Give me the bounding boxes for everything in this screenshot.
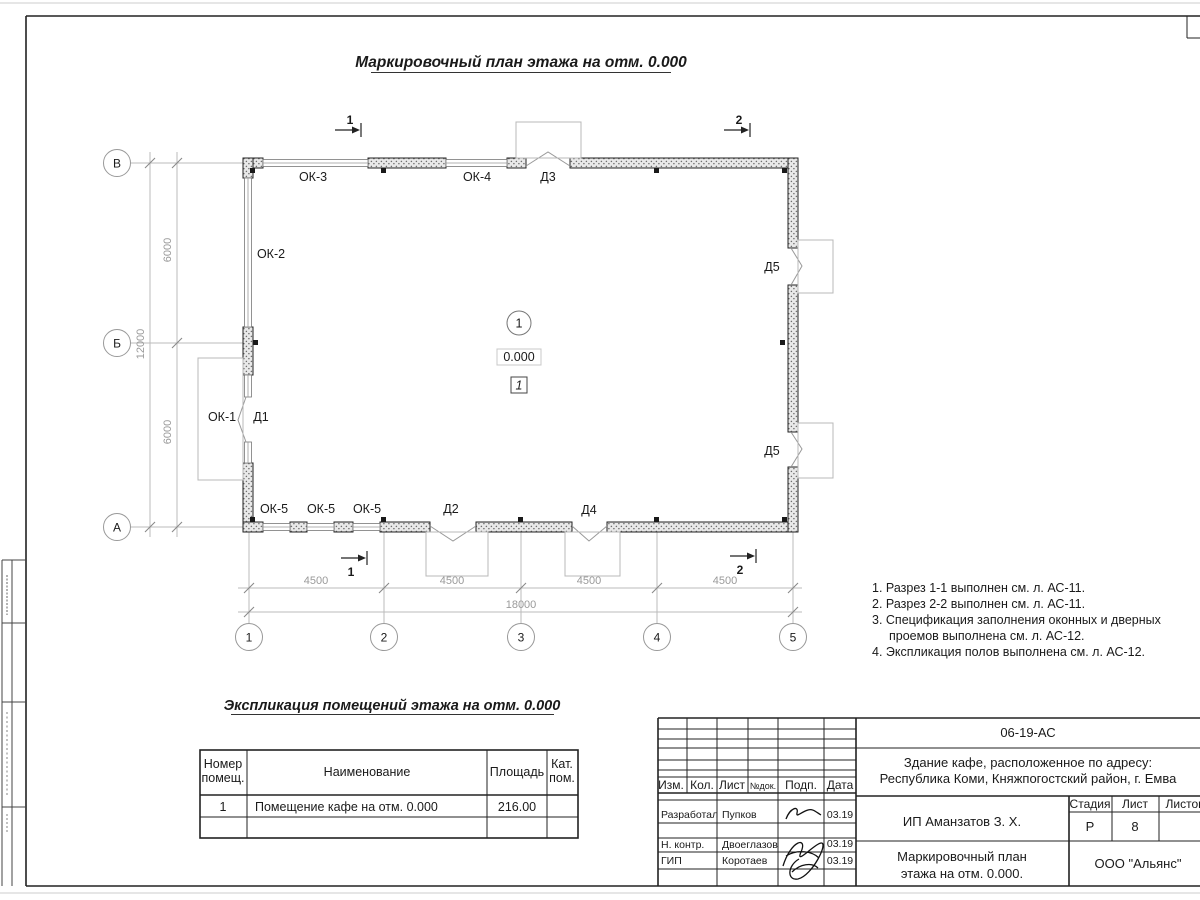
axis-col-3: 3 [518,631,525,645]
signer-role-1: Разработал [661,809,718,821]
room-number-cell: 1 [220,800,227,814]
doc-number: 06-19-АС [1000,725,1055,740]
room-markers: 1 0.000 1 [497,311,541,393]
axis-col-5: 5 [790,631,797,645]
signature-1 [786,808,821,819]
door-d1-leaf [238,397,246,442]
door-d5-lower-leaf [791,432,802,467]
col-header-number-l1: Номер [204,757,243,771]
object-line-1: Здание кафе, расположенное по адресу: [904,755,1152,770]
signer-name-1: Пупков [722,809,757,821]
axis-row-v: В [113,157,121,171]
window-ok3 [263,160,368,167]
drawing-canvas: Маркировочный план этажа на отм. 0.000 В… [0,0,1200,900]
signer-date-1: 03.19 [827,809,853,821]
table-row: 1 Помещение кафе на отм. 0.000 216.00 [220,800,537,814]
floor-type-value: 1 [516,379,523,393]
label-ok4: ОК-4 [463,170,491,184]
windows [245,160,508,531]
dim-6000-lower: 6000 [162,420,174,444]
label-ok5-1: ОК-5 [260,502,288,516]
dim-4500-4: 4500 [713,575,737,587]
section-1-bottom: 1 [341,551,367,579]
svg-text:1: 1 [348,565,355,579]
label-d1: Д1 [253,410,268,424]
section-2-bottom: 2 [730,549,756,577]
axis-col-2: 2 [381,631,388,645]
stamp-col-list: Лист [719,778,746,792]
sheets-label: Листов [1166,797,1200,811]
dim-6000-upper: 6000 [162,238,174,262]
stamp-col-podp: Подп. [785,778,817,792]
stamp-col-izm: Изм. [658,778,684,792]
label-d5-upper: Д5 [764,260,779,274]
window-ok2 [245,178,252,327]
note-line-2: 2. Разрез 2-2 выполнен см. л. АС-11. [872,597,1085,611]
axis-col-4: 4 [654,631,661,645]
object-line-2: Республика Коми, Княжпогостский район, г… [880,771,1177,786]
note-line-1: 1. Разрез 1-1 выполнен см. л. АС-11. [872,581,1085,595]
room-name-cell: Помещение кафе на отм. 0.000 [255,800,438,814]
doors [238,152,802,541]
section-1-top: 1 [335,113,361,137]
label-ok5-2: ОК-5 [307,502,335,516]
window-ok4 [446,160,507,167]
axis-grid [130,152,802,623]
opening-labels: ОК-3 ОК-4 Д3 ОК-2 ОК-1 Д1 ОК-5 ОК-5 ОК-5… [208,170,780,517]
stamp-col-doc: №док. [750,781,776,791]
signature-2 [783,843,823,880]
signer-date-3: 03.19 [827,855,853,867]
stage-value: Р [1086,819,1095,834]
col-header-cat-l2: пом. [549,771,575,785]
sheet-name-line-1: Маркировочный план [897,849,1027,864]
notes-list: 1. Разрез 1-1 выполнен см. л. АС-11. 2. … [872,581,1162,659]
axis-row-a: А [113,521,121,535]
sheet-label: Лист [1122,797,1149,811]
col-header-number-l2: помещ. [201,771,244,785]
sheet-value: 8 [1131,819,1138,834]
signer-name-3: Коротаев [722,855,768,867]
label-ok5-3: ОК-5 [353,502,381,516]
room-table-title: Экспликация помещений этажа на отм. 0.00… [224,698,561,714]
note-line-3: 3. Спецификация заполнения оконных и две… [872,613,1162,627]
door-d4-leaf [572,526,607,541]
window-ok1 [245,375,252,463]
dim-18000: 18000 [506,599,537,611]
label-ok1: ОК-1 [208,410,236,424]
page-title: Маркировочный план этажа на отм. 0.000 [355,54,687,71]
door-d5-upper-leaf [791,248,802,285]
label-d5-lower: Д5 [764,444,779,458]
col-header-name: Наименование [324,765,411,779]
sheet-name-line-2: этажа на отм. 0.000. [901,866,1023,881]
label-ok2: ОК-2 [257,247,285,261]
label-d3: Д3 [540,170,555,184]
label-ok3: ОК-3 [299,170,327,184]
svg-text:1: 1 [347,113,354,127]
svg-text:2: 2 [737,563,744,577]
drawing-sheet: Маркировочный план этажа на отм. 0.000 В… [0,0,1200,900]
column-marks [250,168,787,522]
door-d3-leaf [526,152,570,166]
signer-name-2: Двоеглазов [722,839,778,851]
window-ok5-group [263,524,380,531]
door-d2-leaf [430,526,476,541]
note-line-4: 4. Экспликация полов выполнена см. л. АС… [872,645,1145,659]
axis-row-b: Б [113,337,121,351]
dim-4500-1: 4500 [304,575,328,587]
dim-12000: 12000 [135,329,147,360]
axis-col-1: 1 [246,631,253,645]
room-number: 1 [516,317,523,331]
note-line-3b: проемов выполнена см. л. АС-12. [889,629,1085,643]
section-2-top: 2 [724,113,750,137]
organization-name: ООО "Альянс" [1095,856,1182,871]
col-header-area: Площадь [490,765,544,779]
col-header-cat-l1: Кат. [551,757,573,771]
svg-text:2: 2 [736,113,743,127]
room-table: Номер помещ. Наименование Площадь Кат. п… [200,750,578,838]
client-name: ИП Аманзатов З. Х. [903,814,1021,829]
label-d4: Д4 [581,503,596,517]
label-d2: Д2 [443,502,458,516]
dimension-labels: 6000 6000 12000 4500 4500 4500 4500 1800… [135,238,737,611]
stage-label: Стадия [1070,797,1111,811]
signer-role-3: ГИП [661,855,682,867]
stamp-col-date: Дата [827,778,854,792]
signer-date-2: 03.19 [827,838,853,850]
exterior-walls [243,158,798,532]
elevation-value: 0.000 [503,350,534,364]
room-area-cell: 216.00 [498,800,536,814]
signer-role-2: Н. контр. [661,839,704,851]
dim-4500-2: 4500 [440,575,464,587]
dim-4500-3: 4500 [577,575,601,587]
stamp-col-kol: Кол. [690,778,714,792]
left-margin-boxes [2,560,26,886]
title-block: Изм. Кол. Лист №док. Подп. Дата Разработ… [658,718,1200,886]
